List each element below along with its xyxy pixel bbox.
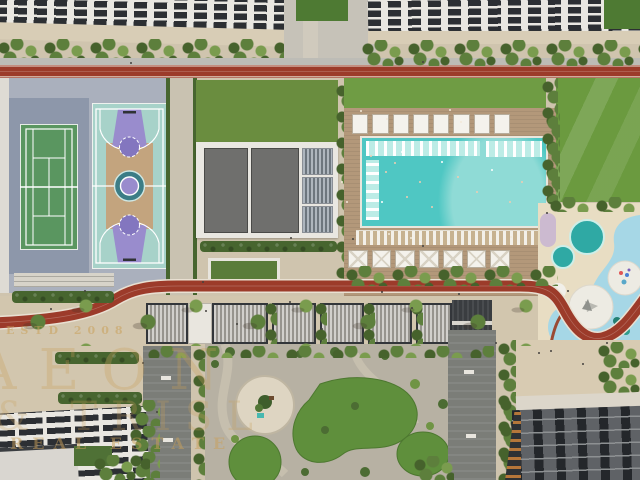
south-east-trees <box>596 342 640 396</box>
clubhouse-skylight <box>302 206 333 233</box>
clubhouse-roof-panel <box>251 148 299 233</box>
aerial-render: ESTD 2008 AEON & TRISL REAL ESTATE <box>0 0 640 480</box>
north-east-corner-lawn <box>604 0 640 29</box>
south-edge-trees <box>412 456 454 480</box>
cabana <box>372 114 388 134</box>
paving-marking <box>161 376 171 380</box>
basketball-court <box>92 103 167 269</box>
paving-marking <box>466 434 476 438</box>
pergola-south-hedge <box>146 346 494 358</box>
cabana <box>352 114 368 134</box>
south-west-roof-slab <box>0 444 79 480</box>
paving-marking <box>464 370 474 374</box>
south-east-tower-roof <box>511 406 640 480</box>
main-pool <box>360 136 548 228</box>
kids-pool-small <box>552 246 574 268</box>
in-pool-lounger-shelf <box>486 141 542 157</box>
promenade-trees <box>0 296 545 346</box>
sun-lounger-row <box>356 230 548 245</box>
play-circle-boat <box>569 285 613 329</box>
pool-cabana-row-north <box>352 114 510 134</box>
north-courtyard-lawn <box>296 0 348 21</box>
central-walkway <box>168 77 196 295</box>
cabana <box>413 114 429 134</box>
tennis-court <box>20 124 78 250</box>
play-circle-playground <box>608 261 640 295</box>
cabana <box>433 114 449 134</box>
cabana <box>494 114 510 134</box>
in-pool-lounger-shelf <box>366 141 480 156</box>
platform-west-edge <box>0 77 9 293</box>
in-pool-lounger-shelf <box>366 160 379 220</box>
clubhouse-north-garden <box>196 80 338 143</box>
cabana <box>393 114 409 134</box>
clubhouse-skylight <box>302 177 333 204</box>
clubhouse-skylight <box>302 148 333 175</box>
paving-marking <box>163 438 173 442</box>
clubhouse-roof <box>196 142 338 238</box>
clubhouse-south-hedge <box>200 241 337 252</box>
garden-plaza-circle <box>236 376 294 434</box>
garden-west-hedge <box>191 346 206 480</box>
event-lawn <box>556 78 640 202</box>
west-plaza-hedge <box>58 392 142 404</box>
north-tree-row-east <box>360 40 640 66</box>
lawn-south-hedge <box>548 197 640 212</box>
pool-south-trees <box>344 266 558 286</box>
walkway-hedge-west <box>166 77 170 295</box>
lawn-west-trees <box>540 78 558 202</box>
court-steps <box>14 273 114 287</box>
south-edge-trees <box>92 455 150 480</box>
cabana <box>474 114 490 134</box>
kids-pool-large <box>570 220 604 254</box>
clubhouse-roof-panel <box>204 148 248 233</box>
cabana <box>453 114 469 134</box>
clubhouse-courtyard-planter <box>208 258 280 288</box>
west-plaza-hedge <box>55 352 139 364</box>
